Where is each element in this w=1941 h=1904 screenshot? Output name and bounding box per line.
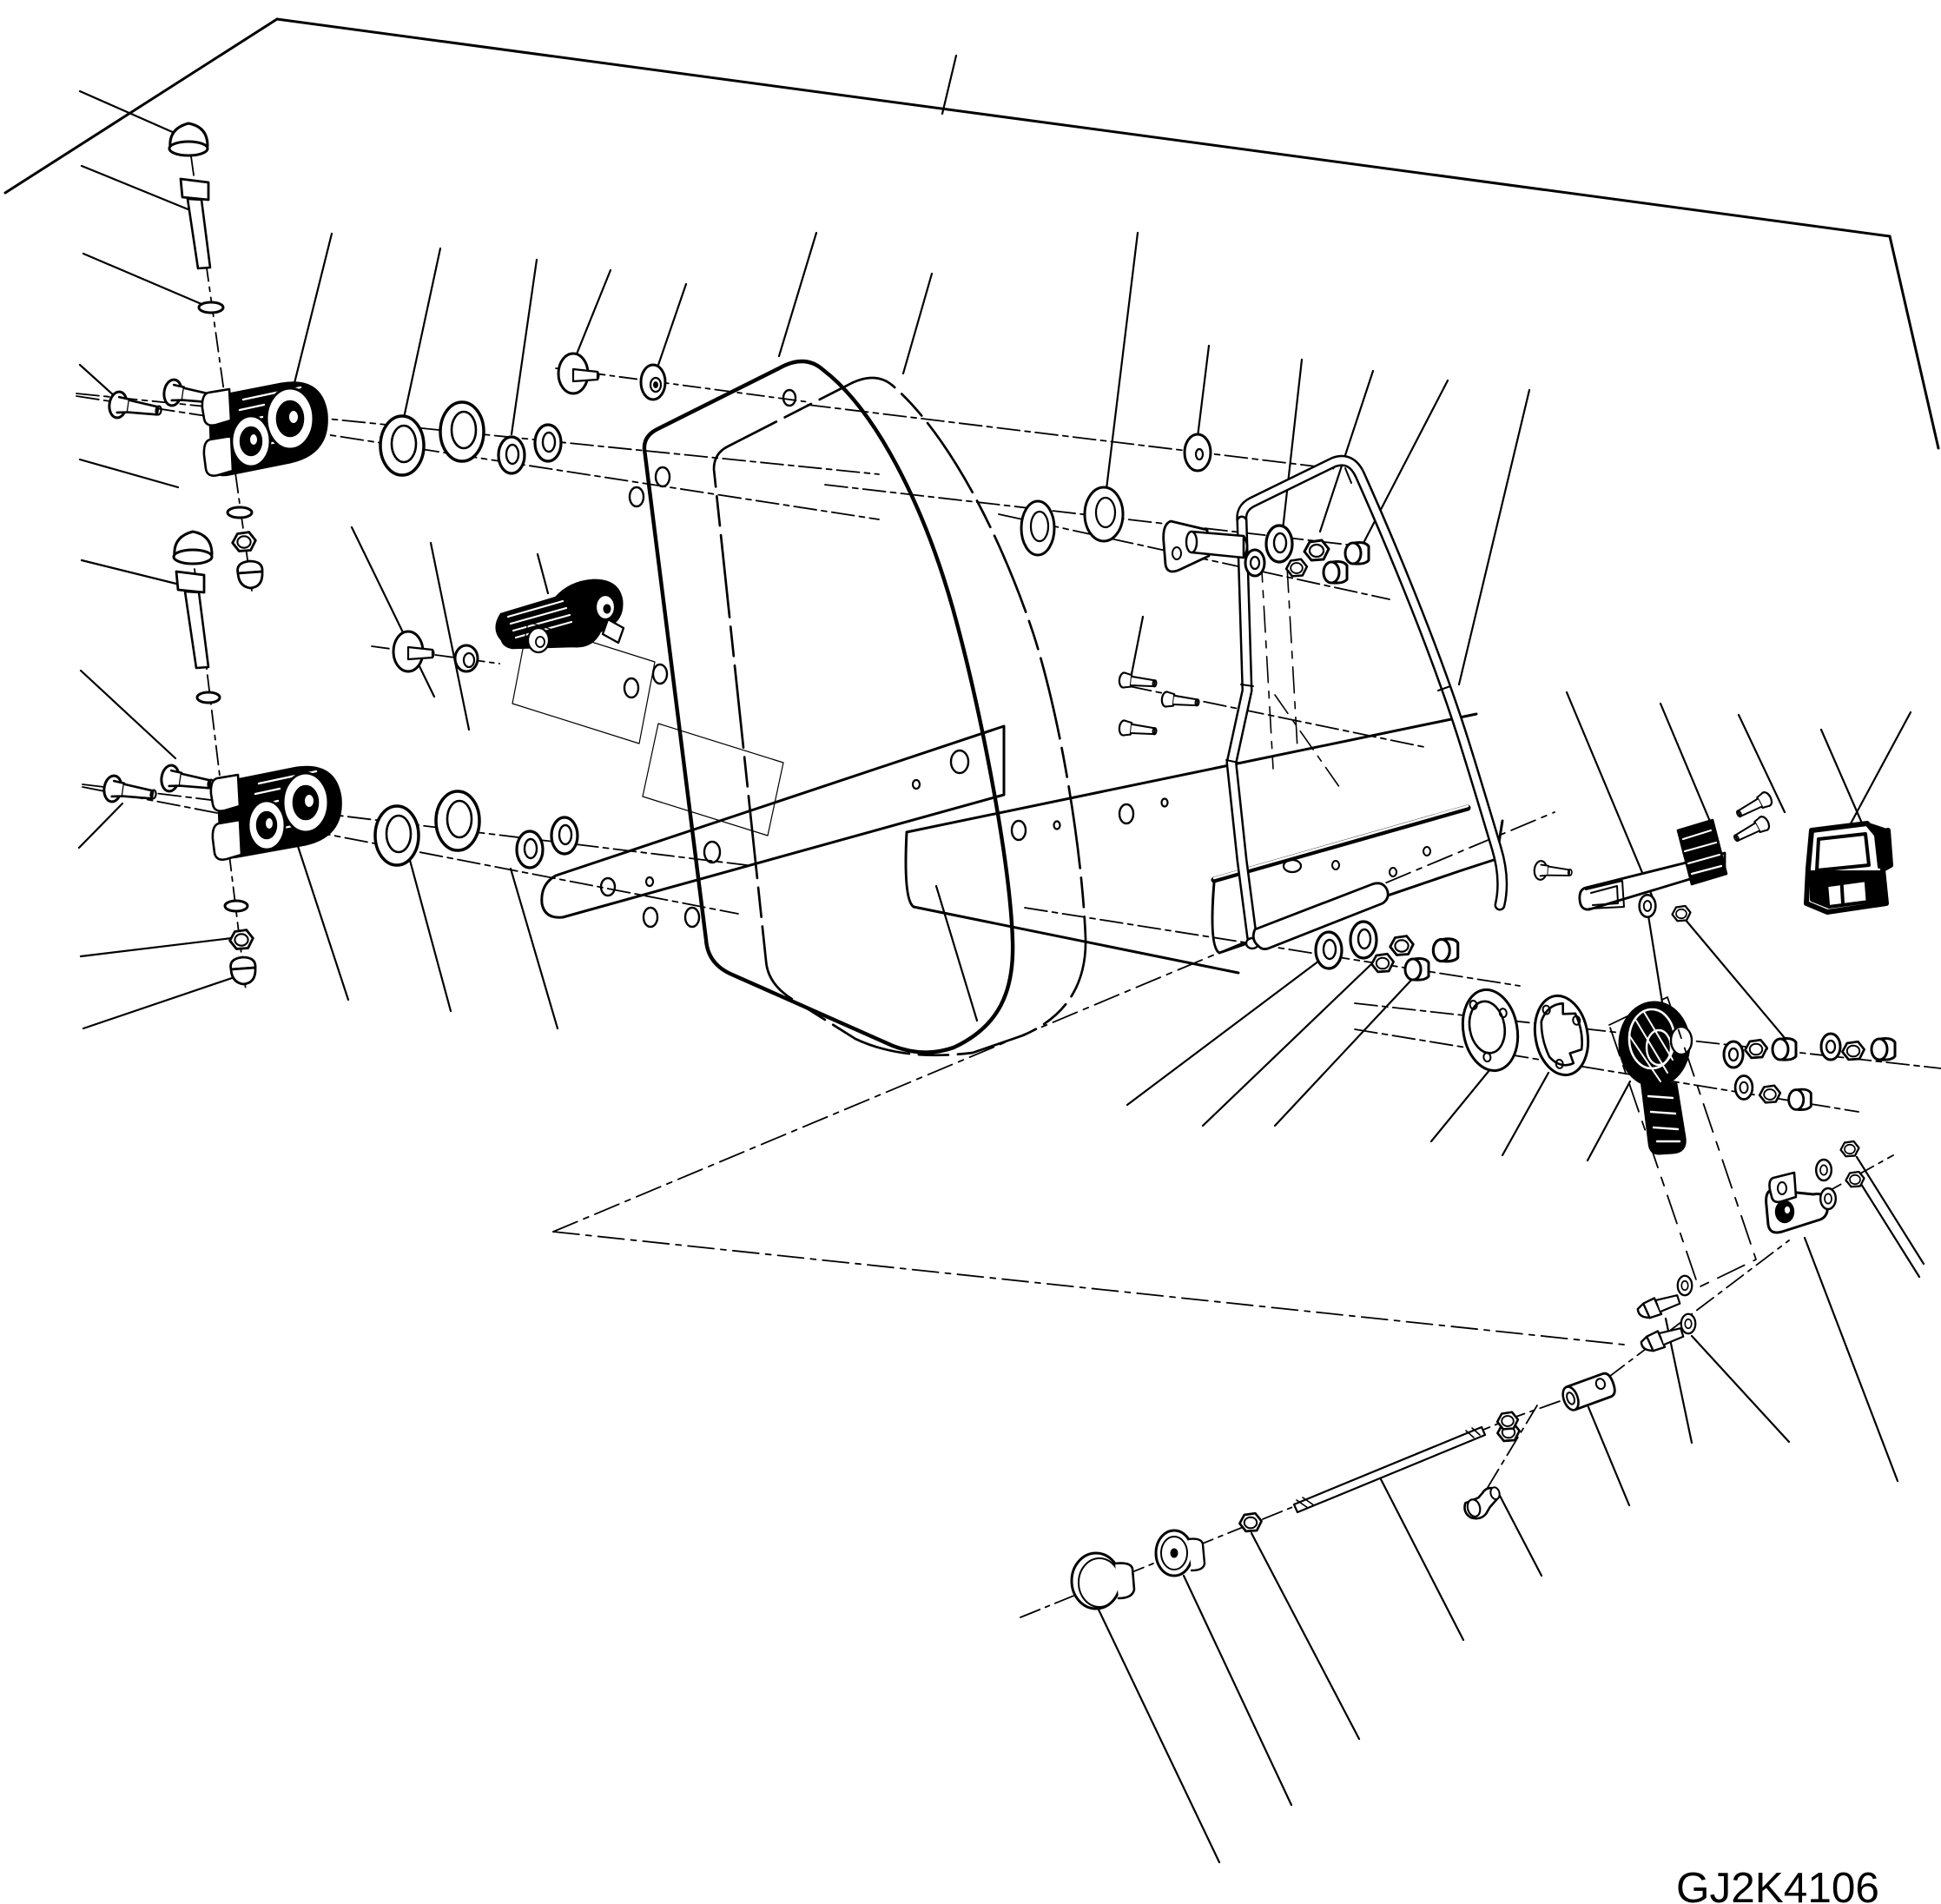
svg-text:GJ2K4106: GJ2K4106 — [1676, 1864, 1879, 1904]
